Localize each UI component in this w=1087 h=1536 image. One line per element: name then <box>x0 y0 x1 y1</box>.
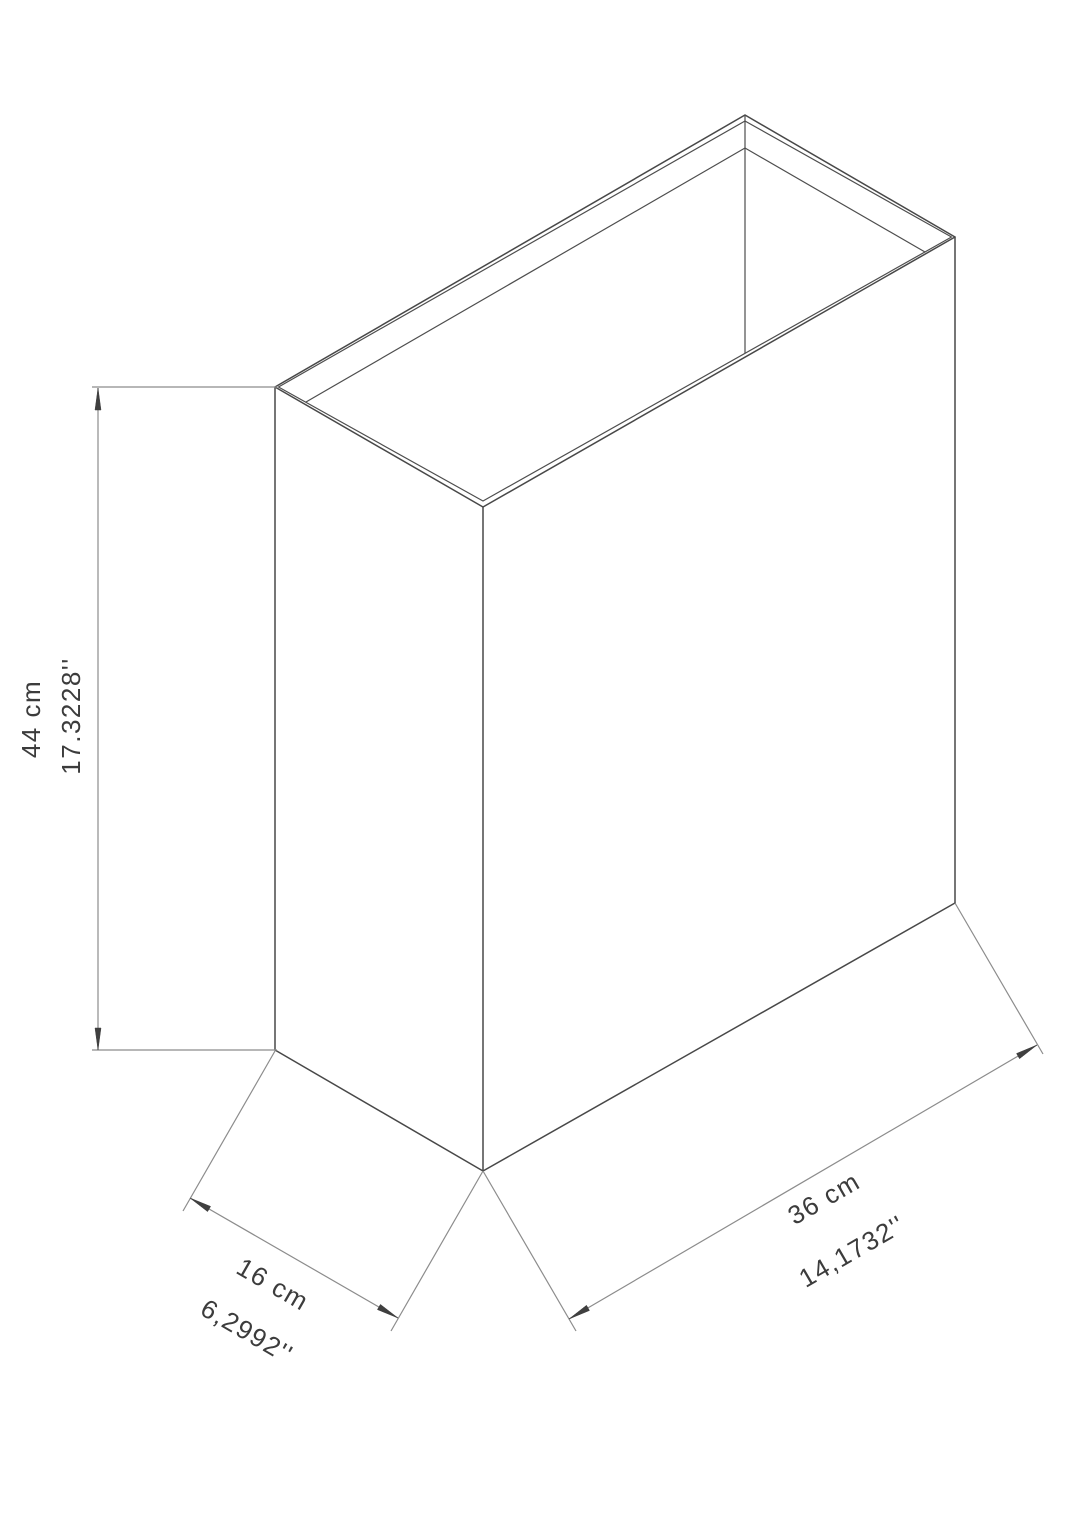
depth-extension-line-left <box>183 1051 275 1211</box>
width-extension-line-right <box>955 903 1043 1054</box>
depth-arrow-left-icon <box>190 1198 211 1212</box>
box-outline <box>275 115 955 1171</box>
height-label-imperial: 17.3228'' <box>56 657 86 774</box>
depth-extension-line-right <box>391 1171 483 1331</box>
bottom-edges <box>275 903 955 1171</box>
isometric-box-drawing: 44 cm 17.3228'' 16 cm 6,2992'' 36 cm 14,… <box>0 0 1087 1536</box>
inner-opening-edge <box>306 148 925 402</box>
width-label-metric: 36 cm <box>783 1166 866 1231</box>
width-extension-line-left <box>483 1171 576 1331</box>
height-arrow-up-icon <box>95 388 101 410</box>
height-dimension: 44 cm 17.3228'' <box>16 387 277 1050</box>
depth-arrow-right-icon <box>377 1304 398 1318</box>
height-arrow-down-icon <box>95 1028 101 1050</box>
width-arrow-left-icon <box>569 1305 590 1319</box>
rim-outer-edge <box>275 115 955 507</box>
width-dimension: 36 cm 14,1732'' <box>483 903 1043 1331</box>
depth-label-metric: 16 cm <box>232 1252 315 1317</box>
rim-offset-edge <box>279 121 952 501</box>
height-label-metric: 44 cm <box>16 680 46 758</box>
width-arrow-right-icon <box>1017 1045 1038 1059</box>
depth-dimension: 16 cm 6,2992'' <box>183 1051 483 1370</box>
technical-drawing-canvas: 44 cm 17.3228'' 16 cm 6,2992'' 36 cm 14,… <box>0 0 1087 1536</box>
